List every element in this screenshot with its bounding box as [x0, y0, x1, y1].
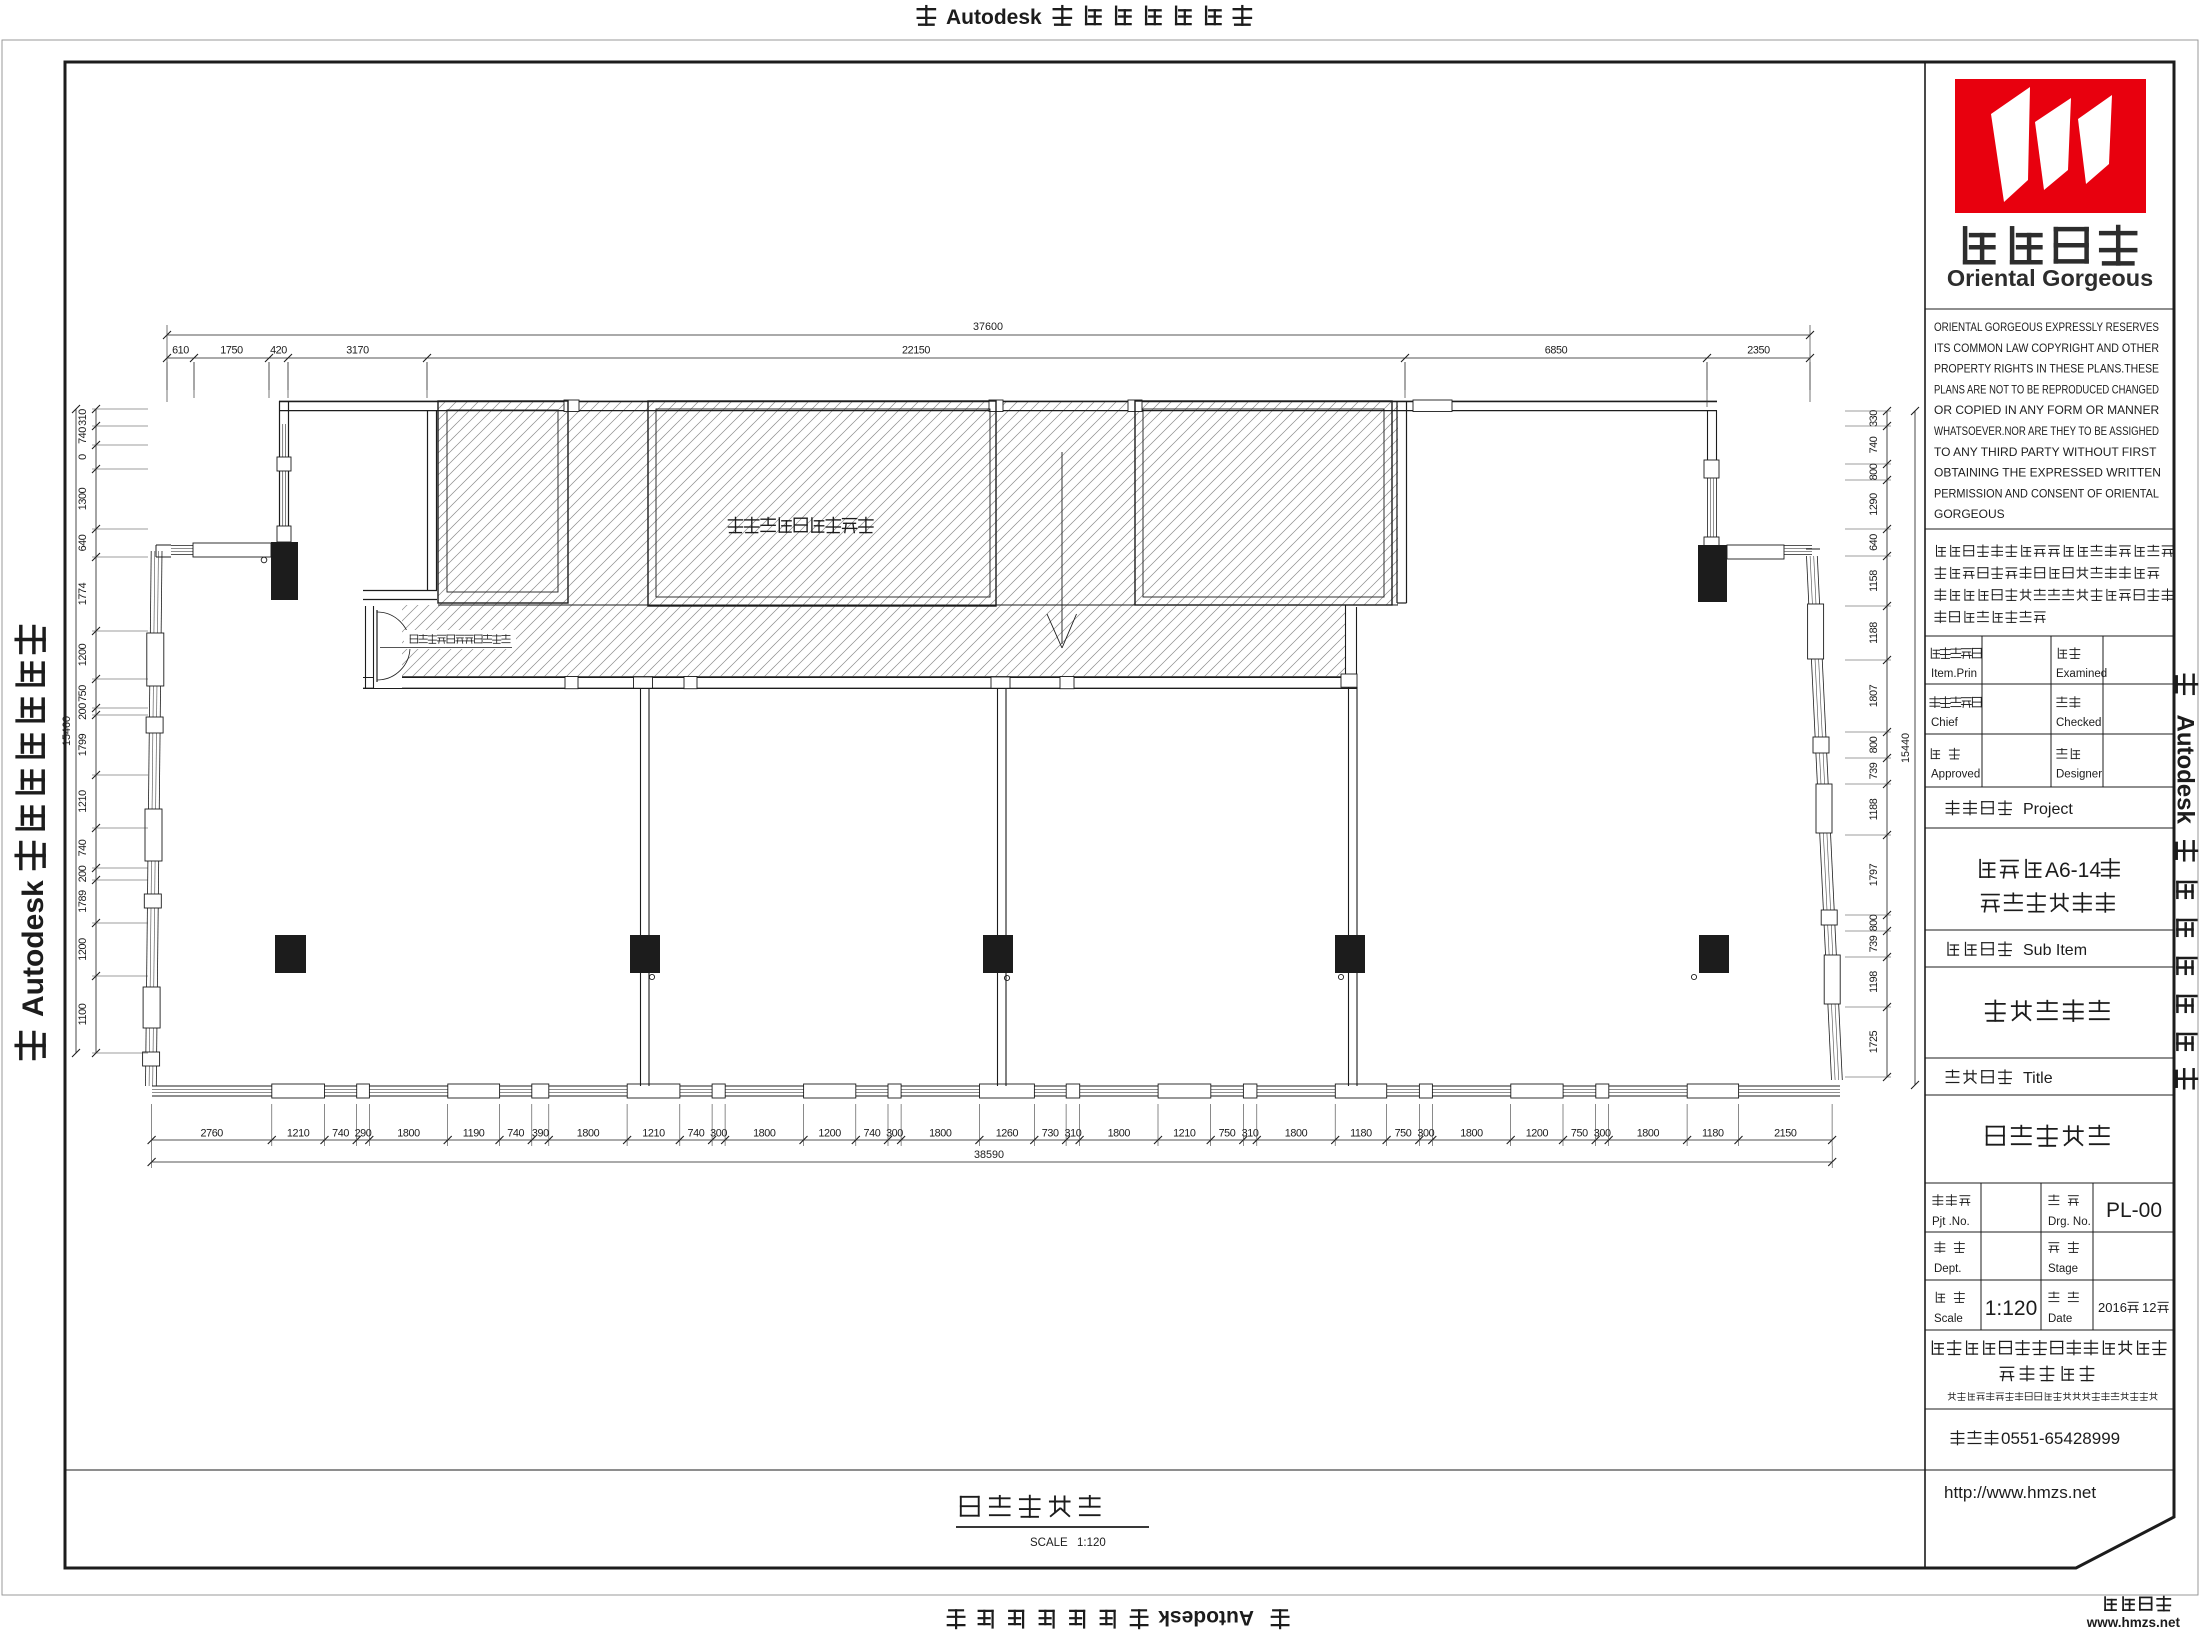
svg-text:http://www.hmzs.net: http://www.hmzs.net: [1944, 1483, 2096, 1502]
svg-text:2150: 2150: [1774, 1128, 1797, 1140]
svg-text:750: 750: [1571, 1128, 1588, 1140]
svg-text:1800: 1800: [397, 1128, 420, 1140]
svg-text:310: 310: [1064, 1128, 1081, 1140]
svg-text:PROPERTY RIGHTS IN THESE PLANS: PROPERTY RIGHTS IN THESE PLANS.THESE: [1934, 362, 2159, 376]
svg-text:1180: 1180: [1350, 1128, 1372, 1140]
svg-text:Pjt .No.: Pjt .No.: [1932, 1216, 1970, 1228]
svg-text:390: 390: [532, 1128, 549, 1140]
svg-text:640: 640: [77, 534, 89, 551]
svg-text:Oriental Gorgeous: Oriental Gorgeous: [1947, 265, 2153, 291]
svg-text:1200: 1200: [77, 643, 89, 666]
svg-text:Stage: Stage: [2048, 1263, 2078, 1275]
svg-text:www.hmzs.net: www.hmzs.net: [2086, 1615, 2181, 1630]
svg-text:PERMISSION AND CONSENT OF ORIE: PERMISSION AND CONSENT OF ORIENTAL: [1934, 486, 2159, 500]
svg-text:0551-65428999: 0551-65428999: [2001, 1429, 2120, 1448]
svg-text:1807: 1807: [1868, 684, 1880, 707]
svg-text:37600: 37600: [973, 321, 1003, 333]
svg-text:A6-14: A6-14: [2045, 859, 2101, 882]
svg-text:1797: 1797: [1868, 863, 1880, 886]
svg-text:1188: 1188: [1868, 798, 1880, 820]
svg-text:PLANS ARE NOT TO BE REPRODUCED: PLANS ARE NOT TO BE REPRODUCED CHANGED: [1934, 382, 2159, 396]
svg-text:1800: 1800: [929, 1128, 952, 1140]
svg-text:800: 800: [1868, 914, 1880, 931]
svg-text:740: 740: [687, 1128, 704, 1140]
svg-text:SCALE: SCALE: [1030, 1537, 1068, 1549]
svg-text:Scale: Scale: [1934, 1313, 1963, 1325]
svg-text:1789: 1789: [77, 890, 89, 913]
svg-text:Autodesk: Autodesk: [1158, 1606, 1254, 1629]
svg-text:739: 739: [1868, 762, 1880, 779]
svg-text:Designer: Designer: [2056, 769, 2102, 781]
svg-text:1200: 1200: [77, 938, 89, 961]
svg-text:1200: 1200: [1526, 1128, 1549, 1140]
svg-text:1210: 1210: [77, 790, 89, 813]
svg-text:750: 750: [1219, 1128, 1236, 1140]
svg-text:6850: 6850: [1545, 345, 1568, 357]
svg-text:640: 640: [1868, 534, 1880, 551]
svg-text:1800: 1800: [753, 1128, 776, 1140]
svg-text:Date: Date: [2048, 1313, 2072, 1325]
svg-text:740: 740: [863, 1128, 880, 1140]
svg-text:1725: 1725: [1868, 1030, 1880, 1053]
svg-text:800: 800: [1868, 736, 1880, 753]
svg-text:12: 12: [2142, 1300, 2156, 1315]
svg-text:Autodesk: Autodesk: [2172, 715, 2199, 825]
svg-text:740: 740: [1868, 436, 1880, 453]
svg-text:0: 0: [77, 454, 89, 460]
svg-text:Checked: Checked: [2056, 717, 2101, 729]
svg-text:750: 750: [77, 685, 89, 702]
svg-text:2016: 2016: [2098, 1300, 2127, 1315]
svg-text:1100: 1100: [77, 1003, 89, 1025]
svg-text:1200: 1200: [818, 1128, 841, 1140]
svg-text:1198: 1198: [1868, 971, 1880, 993]
svg-text:610: 610: [172, 345, 189, 357]
svg-text:Examined: Examined: [2056, 668, 2107, 680]
svg-text:1190: 1190: [463, 1128, 485, 1140]
svg-text:Item.Prin: Item.Prin: [1931, 668, 1977, 680]
svg-text:Title: Title: [2023, 1070, 2053, 1087]
svg-text:310: 310: [77, 409, 89, 426]
svg-text:1799: 1799: [77, 733, 89, 756]
svg-text:300: 300: [886, 1128, 903, 1140]
svg-text:330: 330: [1868, 410, 1880, 427]
svg-text:1210: 1210: [642, 1128, 665, 1140]
svg-text:800: 800: [1868, 463, 1880, 480]
svg-text:15460: 15460: [61, 716, 73, 746]
svg-text:1300: 1300: [77, 487, 89, 510]
svg-text:2350: 2350: [1747, 345, 1770, 357]
svg-text:1:120: 1:120: [1077, 1537, 1106, 1549]
svg-text:ORIENTAL GORGEOUS EXPRESSLY RE: ORIENTAL GORGEOUS EXPRESSLY RESERVES: [1934, 320, 2159, 334]
svg-text:730: 730: [1042, 1128, 1059, 1140]
svg-text:1800: 1800: [1285, 1128, 1308, 1140]
svg-text:WHATSOEVER.NOR ARE THEY TO BE: WHATSOEVER.NOR ARE THEY TO BE ASSIGHED: [1934, 424, 2159, 438]
svg-text:1180: 1180: [1702, 1128, 1724, 1140]
svg-text:1158: 1158: [1868, 570, 1880, 592]
svg-text:1800: 1800: [577, 1128, 600, 1140]
svg-text:Drg. No.: Drg. No.: [2048, 1216, 2091, 1228]
svg-text:15440: 15440: [1900, 733, 1912, 763]
svg-text:1774: 1774: [77, 582, 89, 605]
svg-text:Chief: Chief: [1931, 717, 1959, 729]
svg-text:38590: 38590: [974, 1149, 1004, 1161]
svg-text:OR COPIED IN ANY FORM OR MANNE: OR COPIED IN ANY FORM OR MANNER: [1934, 403, 2159, 417]
svg-text:1800: 1800: [1108, 1128, 1131, 1140]
svg-text:1800: 1800: [1460, 1128, 1483, 1140]
svg-text:1188: 1188: [1868, 622, 1880, 644]
svg-text:PL-00: PL-00: [2106, 1199, 2162, 1222]
svg-text:750: 750: [1395, 1128, 1412, 1140]
svg-text:1260: 1260: [996, 1128, 1019, 1140]
svg-text:739: 739: [1868, 935, 1880, 952]
svg-text:Dept.: Dept.: [1934, 1263, 1962, 1275]
svg-text:Approved: Approved: [1931, 769, 1980, 781]
svg-text:310: 310: [1242, 1128, 1259, 1140]
svg-text:OBTAINING THE EXPRESSED WRITTE: OBTAINING THE EXPRESSED WRITTEN: [1934, 466, 2161, 480]
svg-text:740: 740: [507, 1128, 524, 1140]
svg-text:420: 420: [270, 345, 287, 357]
svg-text:740: 740: [77, 839, 89, 856]
svg-text:1800: 1800: [1637, 1128, 1660, 1140]
svg-text:Autodesk: Autodesk: [946, 6, 1042, 29]
svg-text:TO ANY THIRD PARTY WITHOUT FIR: TO ANY THIRD PARTY WITHOUT FIRST: [1934, 445, 2157, 459]
svg-text:Project: Project: [2023, 801, 2073, 818]
svg-text:1290: 1290: [1868, 493, 1880, 516]
svg-text:1750: 1750: [220, 345, 243, 357]
svg-text:2760: 2760: [200, 1128, 223, 1140]
svg-text:1210: 1210: [287, 1128, 310, 1140]
svg-text:22150: 22150: [902, 345, 930, 357]
svg-text:1210: 1210: [1173, 1128, 1196, 1140]
svg-text:740: 740: [77, 427, 89, 444]
svg-text:200: 200: [77, 865, 89, 882]
svg-text:Sub Item: Sub Item: [2023, 942, 2087, 959]
svg-text:Autodesk: Autodesk: [17, 880, 50, 1017]
svg-text:GORGEOUS: GORGEOUS: [1934, 507, 2005, 521]
svg-text:740: 740: [332, 1128, 349, 1140]
svg-text:ITS COMMON LAW COPYRIGHT AND O: ITS COMMON LAW COPYRIGHT AND OTHER: [1934, 341, 2159, 355]
svg-text:1:120: 1:120: [1985, 1297, 2038, 1320]
svg-text:3170: 3170: [346, 345, 369, 357]
svg-text:200: 200: [77, 703, 89, 720]
